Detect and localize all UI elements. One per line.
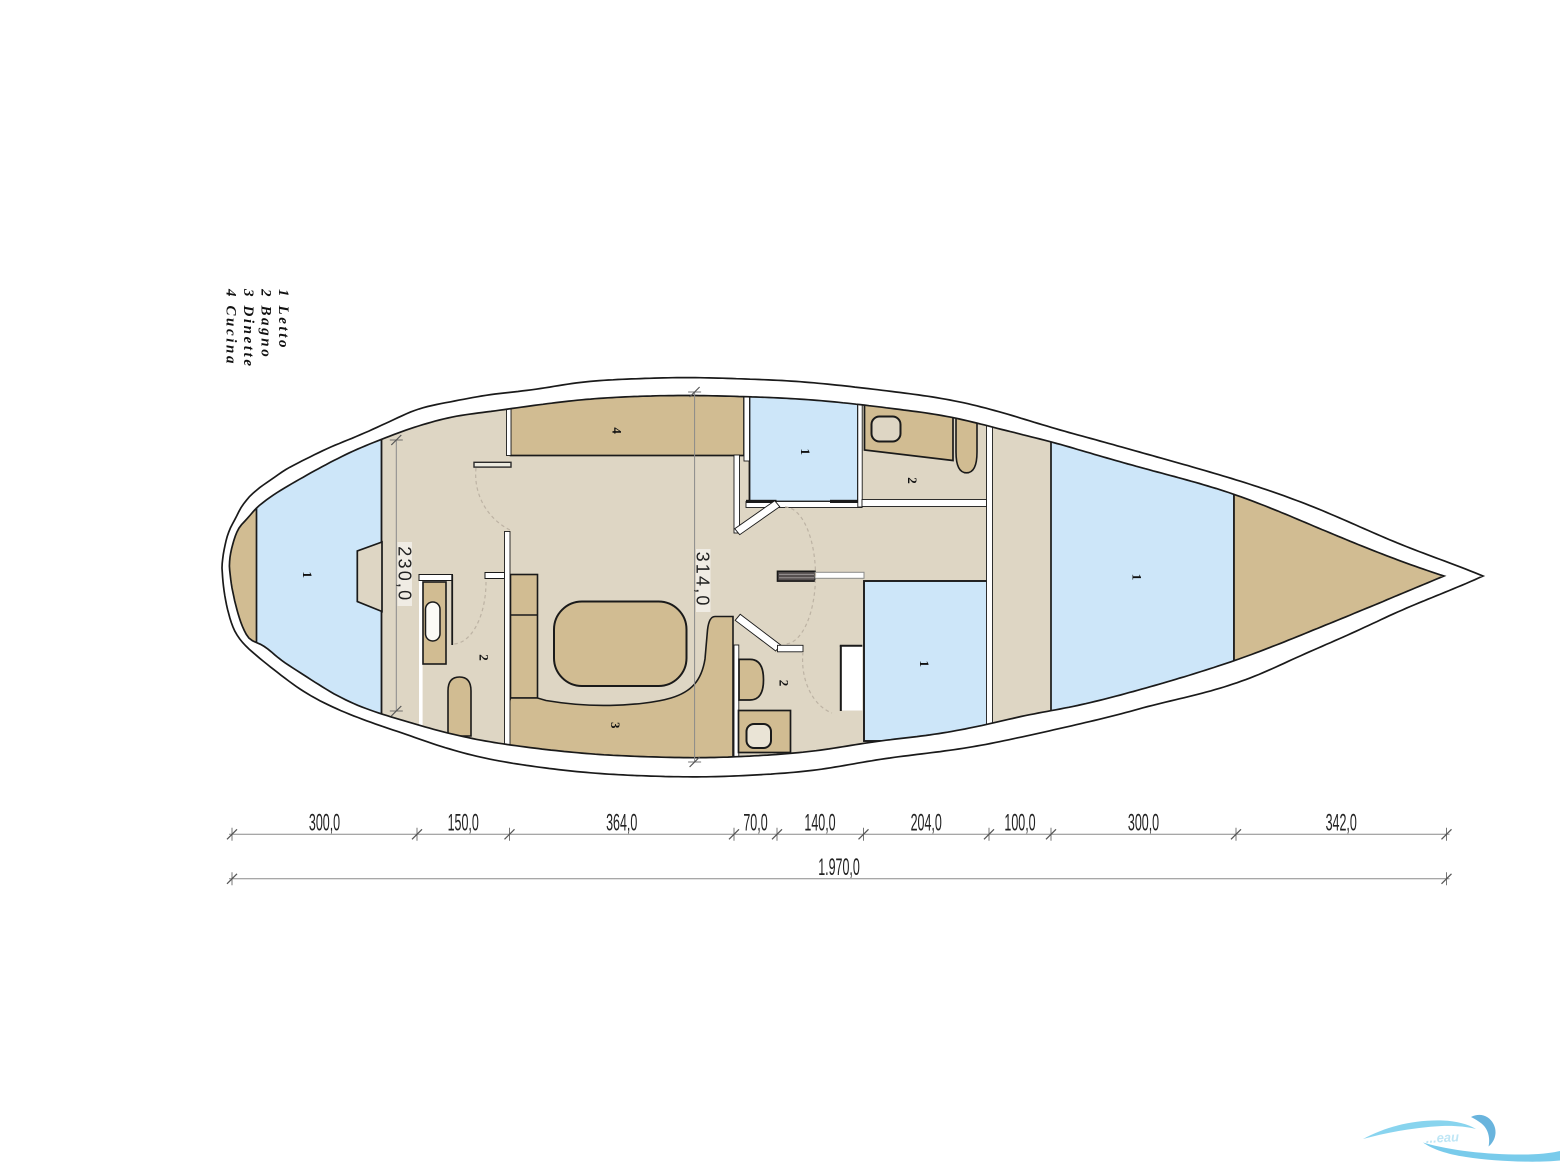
svg-text:230,0: 230,0 [394,546,414,602]
svg-text:2: 2 [905,477,920,484]
svg-text:150,0: 150,0 [448,811,479,837]
svg-text:140,0: 140,0 [804,811,835,837]
svg-text:70,0: 70,0 [743,811,767,837]
svg-text:3 Dinette: 3 Dinette [240,288,256,369]
svg-text:1: 1 [798,449,813,456]
svg-text:342,0: 342,0 [1326,811,1357,837]
svg-text:1: 1 [300,572,315,579]
svg-text:1: 1 [917,660,932,667]
svg-text:2: 2 [477,654,492,661]
svg-text:300,0: 300,0 [309,811,340,837]
svg-text:4 Cucina: 4 Cucina [223,288,239,366]
svg-text:1: 1 [1130,574,1145,581]
svg-text:2 Bagno: 2 Bagno [258,288,274,359]
svg-text:204,0: 204,0 [911,811,942,837]
svg-text:300,0: 300,0 [1128,811,1159,837]
svg-text:1.970,0: 1.970,0 [818,855,860,881]
svg-text:3: 3 [608,722,623,729]
svg-text:100,0: 100,0 [1004,811,1035,837]
svg-text:4: 4 [610,427,625,434]
svg-text:364,0: 364,0 [606,811,637,837]
svg-text:314,0: 314,0 [693,552,713,608]
svg-text:2: 2 [777,680,792,687]
svg-text:1 Letto: 1 Letto [275,289,291,350]
svg-text:...eau: ...eau [1425,1129,1459,1146]
